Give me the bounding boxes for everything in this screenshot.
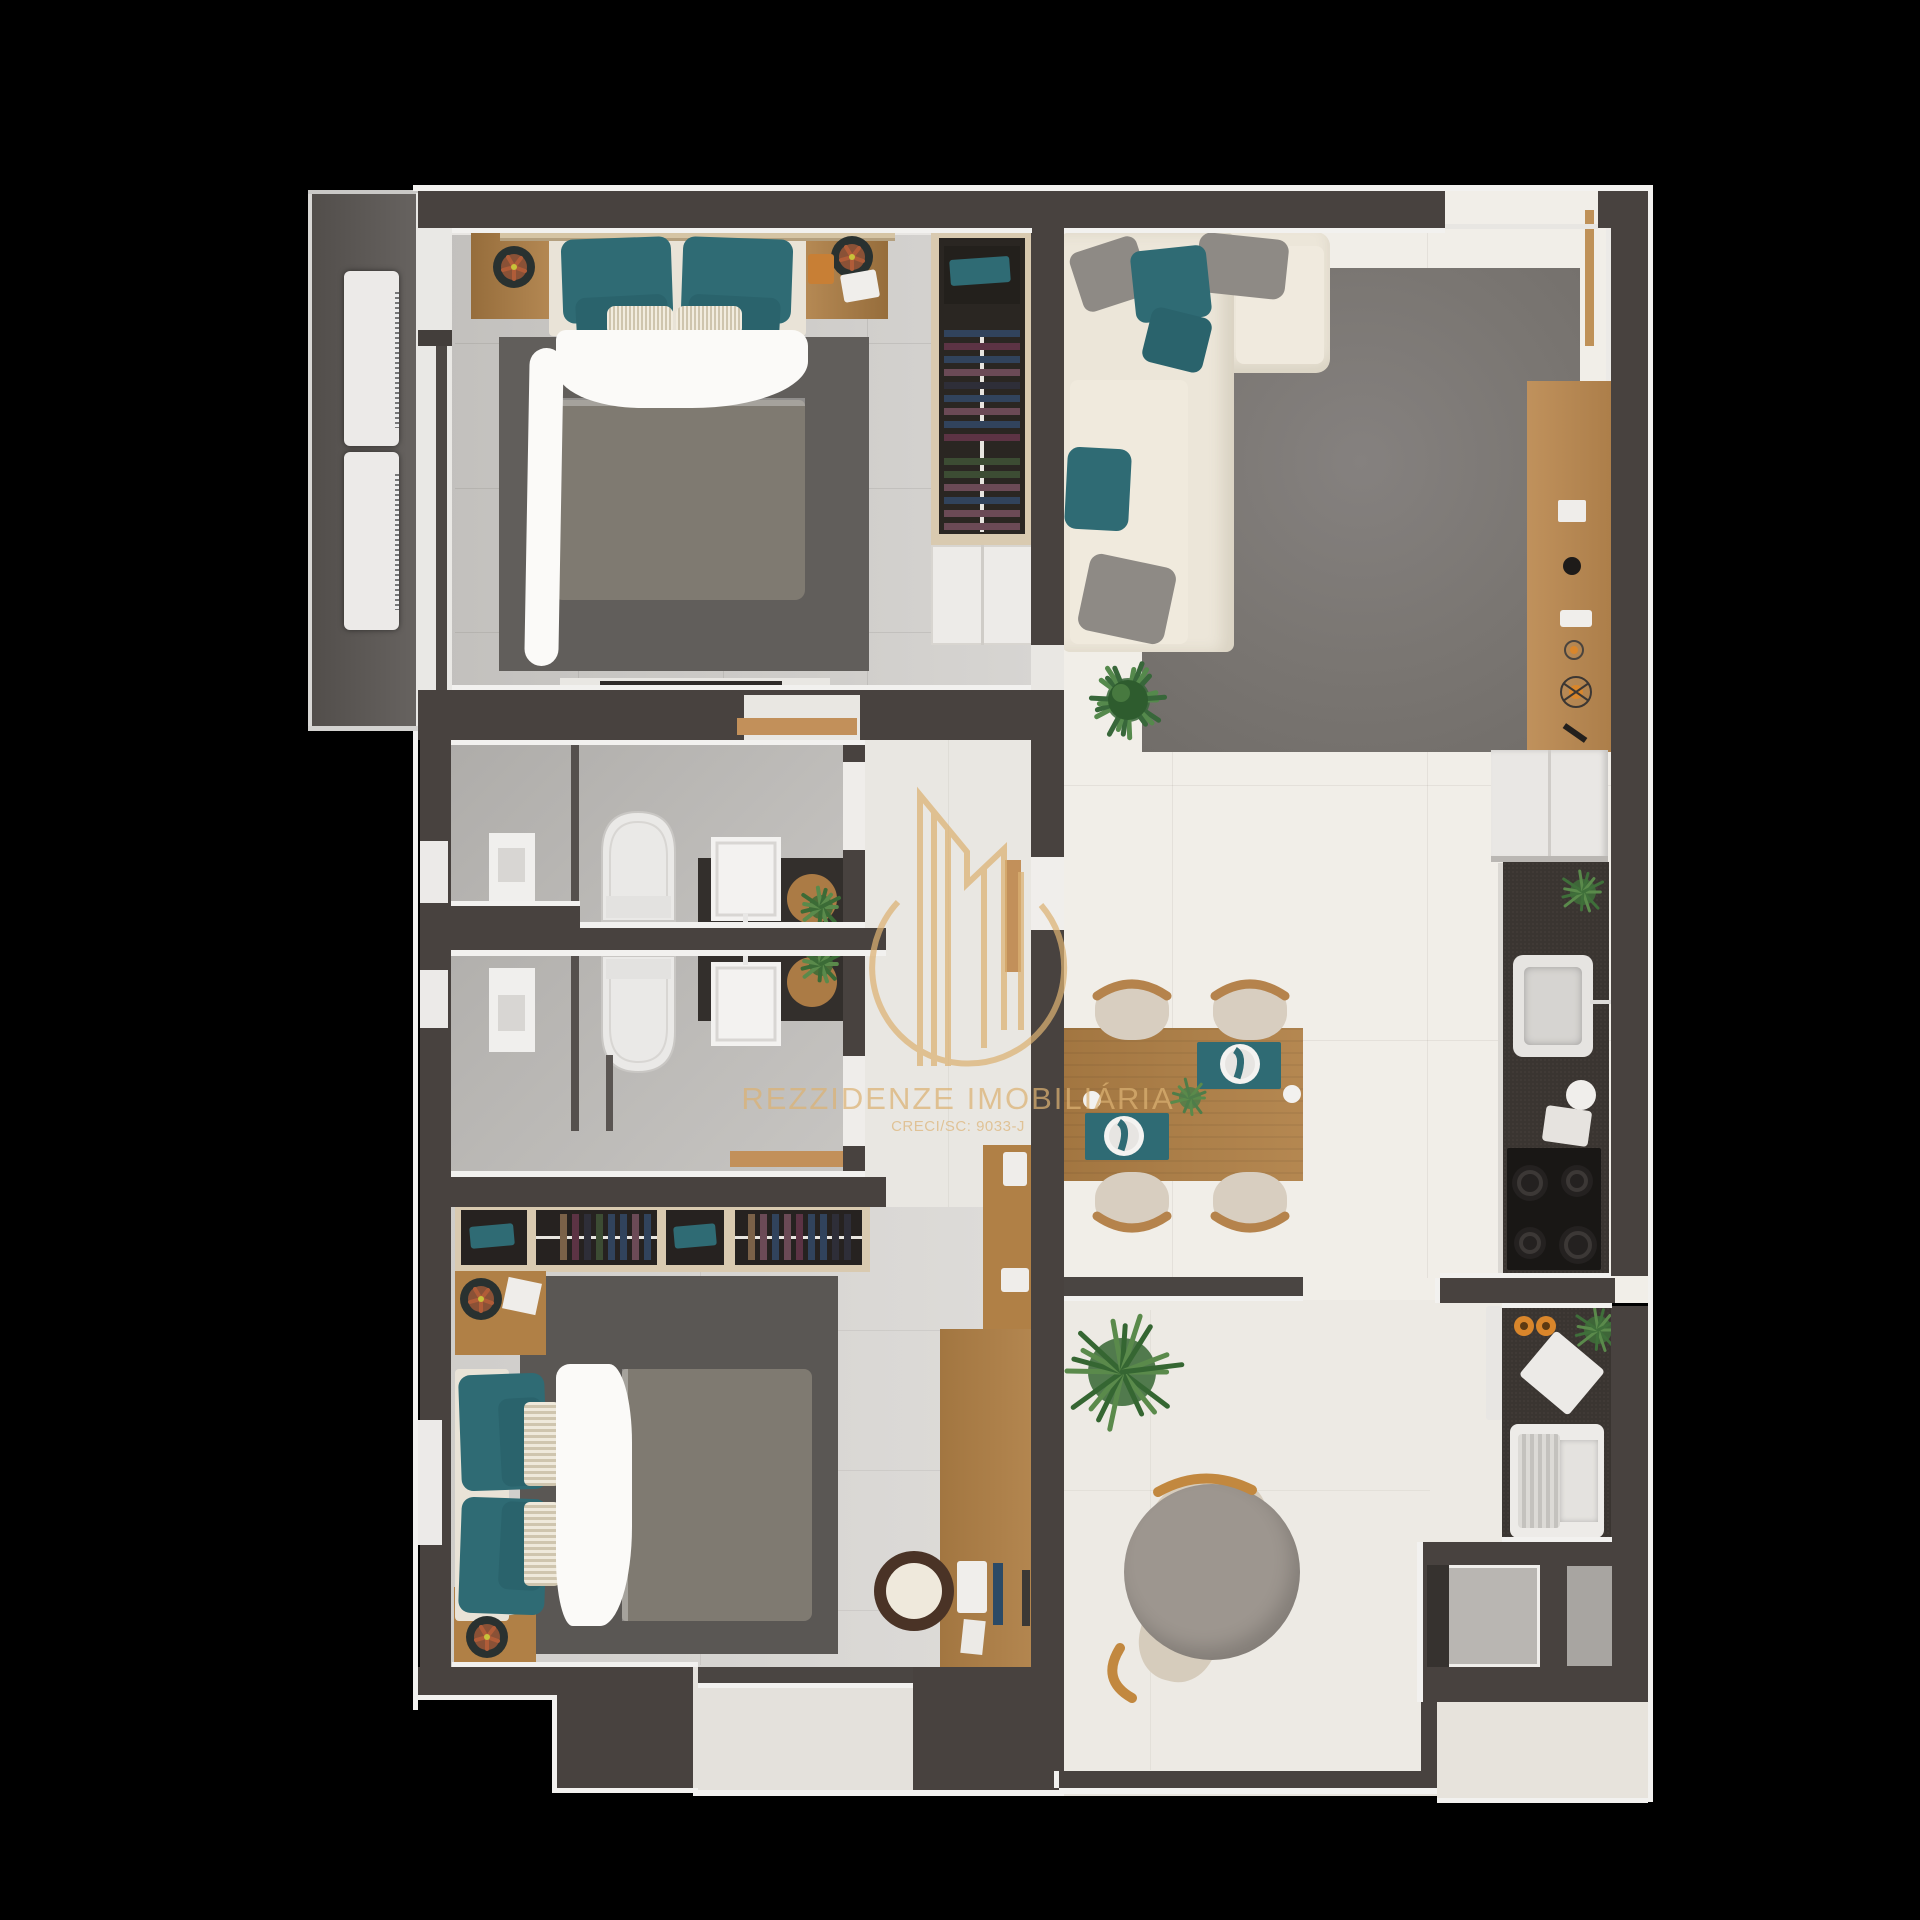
svg-text:CRECI/SC: 9033-J: CRECI/SC: 9033-J [891, 1118, 1025, 1135]
svg-text:REZZIDENZE IMOBILIÁRIA: REZZIDENZE IMOBILIÁRIA [741, 1081, 1174, 1116]
